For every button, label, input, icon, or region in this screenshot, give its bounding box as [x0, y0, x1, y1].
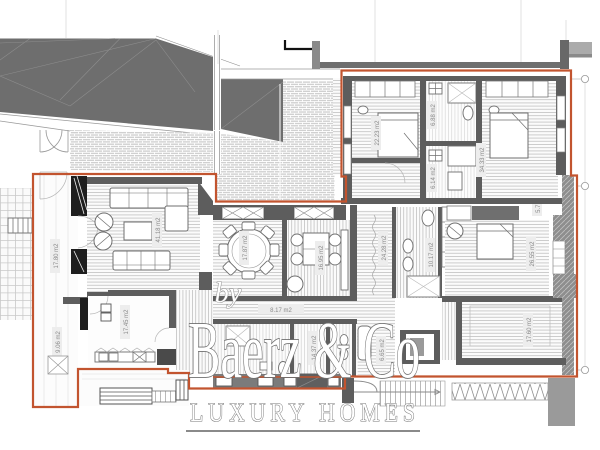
svg-text:17.60 m2: 17.60 m2 [527, 317, 533, 343]
svg-text:LUXURY HOMES: LUXURY HOMES [190, 398, 420, 427]
svg-text:41.18 m2: 41.18 m2 [156, 217, 162, 243]
svg-text:17.45 m2: 17.45 m2 [124, 309, 130, 335]
svg-text:by: by [215, 278, 242, 309]
svg-text:Baerz & Co: Baerz & Co [188, 307, 420, 395]
svg-text:34.33 m2: 34.33 m2 [480, 147, 486, 173]
svg-text:9.06 m2: 9.06 m2 [56, 331, 62, 353]
svg-text:16.95 m2: 16.95 m2 [319, 245, 325, 271]
svg-text:24.28 m2: 24.28 m2 [382, 235, 388, 261]
svg-text:10.17 m2: 10.17 m2 [429, 242, 435, 268]
svg-text:22.23 m2: 22.23 m2 [375, 120, 381, 146]
svg-text:17.87 m2: 17.87 m2 [243, 235, 249, 261]
svg-text:6.88 m2: 6.88 m2 [431, 104, 437, 126]
svg-text:26.55 m2: 26.55 m2 [530, 241, 536, 267]
svg-text:6.14 m2: 6.14 m2 [431, 167, 437, 189]
svg-text:17.80 m2: 17.80 m2 [54, 243, 60, 269]
